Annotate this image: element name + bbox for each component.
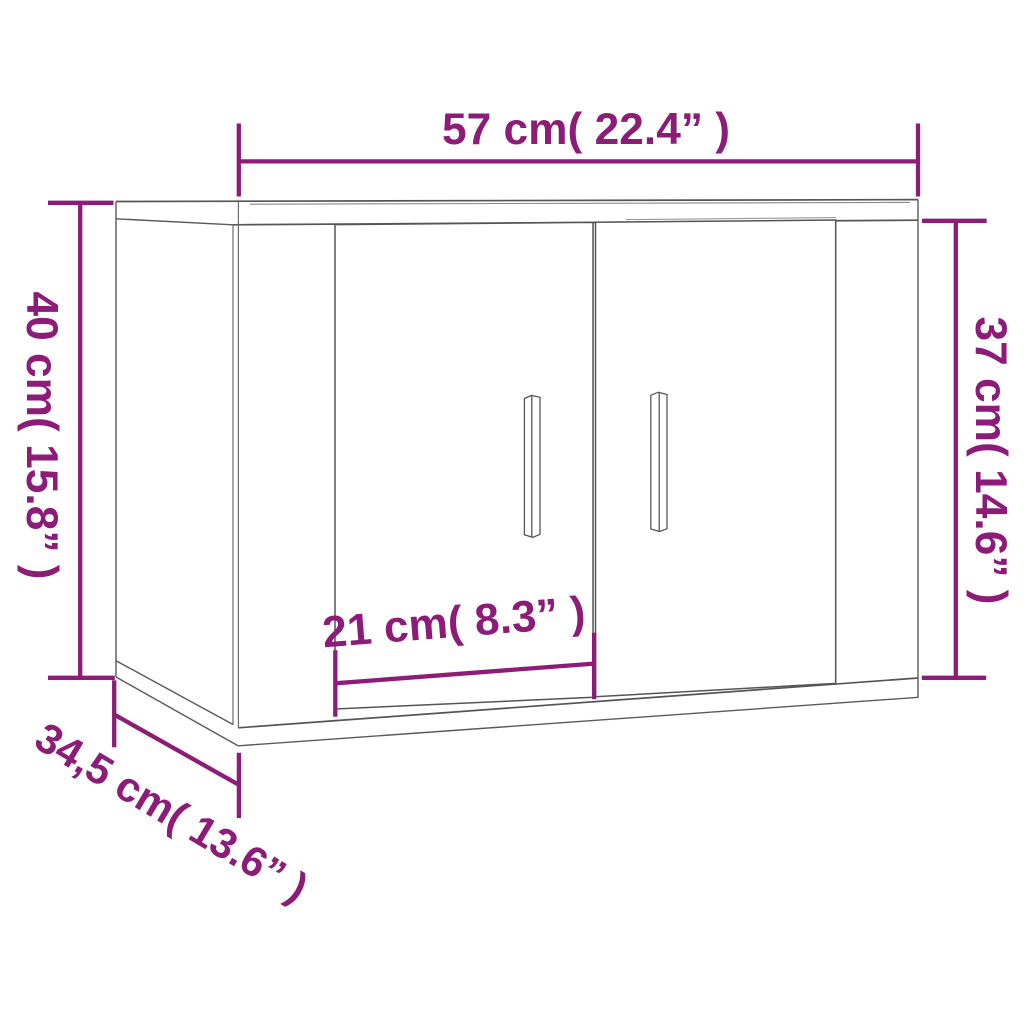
svg-text:40 cm( 15.8” ): 40 cm( 15.8” )	[17, 291, 66, 579]
svg-text:37 cm( 14.6” ): 37 cm( 14.6” )	[966, 316, 1015, 604]
svg-text:57 cm( 22.4” ): 57 cm( 22.4” )	[442, 105, 730, 154]
